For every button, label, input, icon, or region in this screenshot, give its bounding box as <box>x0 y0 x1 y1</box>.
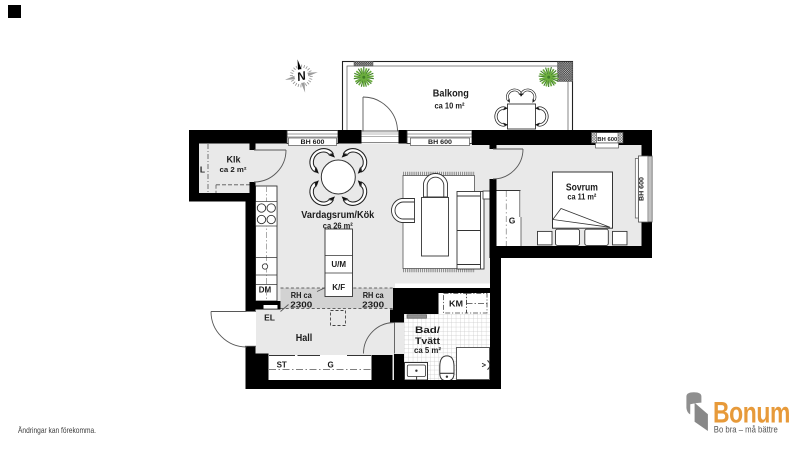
svg-text:ca 2 m²: ca 2 m² <box>220 165 248 174</box>
svg-text:2300: 2300 <box>362 300 385 309</box>
svg-text:KM: KM <box>449 300 463 309</box>
svg-text:Hall: Hall <box>296 333 313 344</box>
svg-text:K/F: K/F <box>332 283 345 292</box>
svg-text:DM: DM <box>259 286 272 295</box>
svg-text:Bad/: Bad/ <box>415 325 440 336</box>
svg-text:BH 600: BH 600 <box>639 176 646 201</box>
svg-text:U/M: U/M <box>331 260 346 269</box>
svg-text:L: L <box>200 165 205 175</box>
svg-text:ca 11 m²: ca 11 m² <box>567 192 596 202</box>
svg-text:Vardagsrum/Kök: Vardagsrum/Kök <box>301 209 374 221</box>
svg-text:EL: EL <box>264 313 275 323</box>
svg-text:Ändringar kan förekomma.: Ändringar kan förekomma. <box>18 425 96 435</box>
svg-text:BH 600: BH 600 <box>597 137 617 143</box>
svg-text:Balkong: Balkong <box>433 88 469 100</box>
svg-text:RH ca: RH ca <box>291 291 312 300</box>
svg-text:RH ca: RH ca <box>363 291 384 300</box>
svg-text:BH 600: BH 600 <box>428 139 453 146</box>
svg-text:ca 10 m²: ca 10 m² <box>435 101 465 111</box>
svg-text:Bo bra – må bättre: Bo bra – må bättre <box>714 424 778 434</box>
svg-text:Klk: Klk <box>227 155 242 166</box>
svg-text:ST: ST <box>277 361 287 370</box>
svg-text:2300: 2300 <box>290 300 313 309</box>
svg-text:G: G <box>327 361 333 370</box>
svg-text:ca 5 m²: ca 5 m² <box>414 346 441 355</box>
svg-text:G: G <box>509 216 516 226</box>
svg-text:BH 600: BH 600 <box>301 139 326 146</box>
